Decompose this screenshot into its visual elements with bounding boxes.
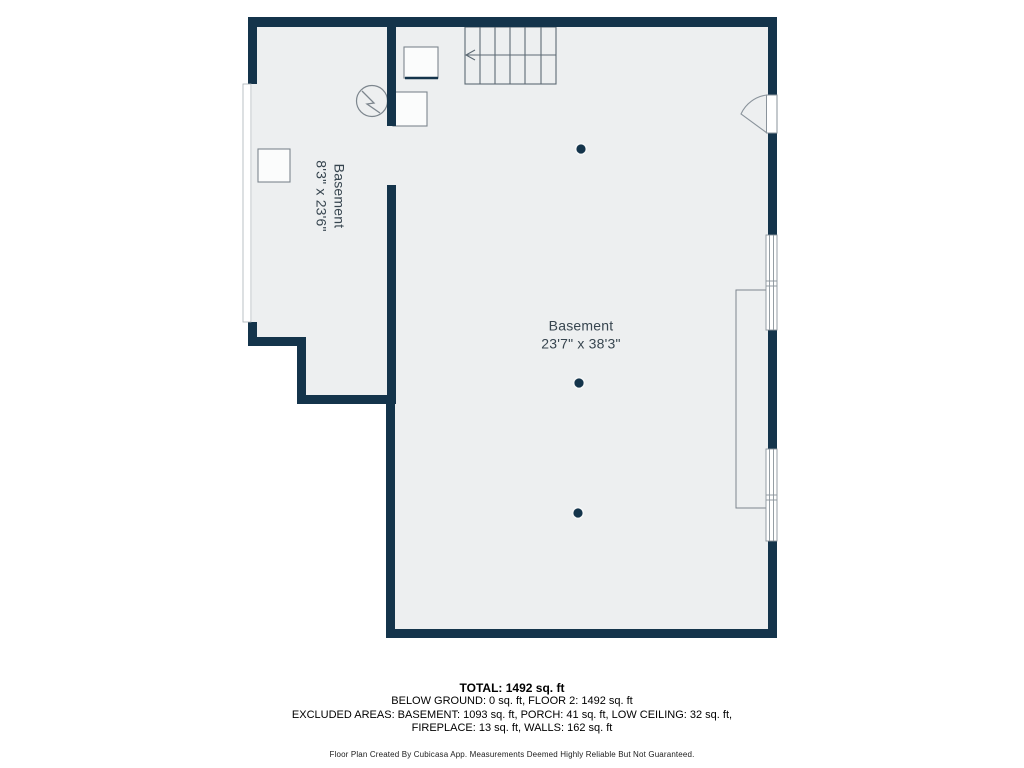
room-dimensions: 23'7" x 38'3" — [541, 335, 620, 353]
wall-right-2 — [768, 133, 777, 235]
floor-area — [252, 22, 772, 634]
wall-right-1 — [768, 17, 777, 95]
excluded-areas-text-2: FIREPLACE: 13 sq. ft, WALLS: 162 sq. ft — [0, 722, 1024, 736]
wall-top — [248, 17, 777, 27]
area-summary: TOTAL: 1492 sq. ft BELOW GROUND: 0 sq. f… — [0, 681, 1024, 759]
room-name: Basement — [541, 317, 620, 335]
room-name: Basement — [330, 160, 348, 231]
wall-notch-side — [297, 337, 306, 404]
disclaimer-text: Floor Plan Created By Cubicasa App. Meas… — [0, 750, 1024, 759]
window-icon-right-lower — [766, 449, 777, 541]
floor-plan-page: Basement 23'7" x 38'3" Basement 8'3" x 2… — [0, 0, 1024, 768]
wall-interior-lower — [387, 185, 396, 404]
wall-interior-upper — [387, 17, 396, 126]
storage-box-icon — [258, 149, 290, 182]
wall-notch-bottom — [297, 395, 395, 404]
stairs-icon — [465, 27, 556, 84]
appliance-icon — [404, 47, 438, 78]
column-dot — [573, 508, 584, 519]
wall-right-3 — [768, 330, 777, 449]
wall-main-left — [386, 395, 395, 638]
room-label-small: Basement 8'3" x 23'6" — [312, 160, 349, 231]
wall-right-4 — [768, 541, 777, 638]
wall-bottom — [386, 629, 777, 638]
room-dimensions: 8'3" x 23'6" — [312, 160, 330, 231]
water-heater-icon — [357, 86, 388, 117]
area-breakdown-text: BELOW GROUND: 0 sq. ft, FLOOR 2: 1492 sq… — [0, 695, 1024, 709]
wall-left-upper — [248, 17, 257, 84]
window-icon-left — [243, 84, 251, 322]
appliance-icon — [393, 92, 427, 126]
excluded-areas-text-1: EXCLUDED AREAS: BASEMENT: 1093 sq. ft, P… — [0, 709, 1024, 723]
column-dot — [574, 378, 585, 389]
room-label-main: Basement 23'7" x 38'3" — [541, 317, 620, 354]
window-icon-right-upper — [766, 235, 777, 330]
column-dot — [576, 144, 587, 155]
floor-plan — [0, 0, 1024, 768]
total-area-text: TOTAL: 1492 sq. ft — [0, 681, 1024, 695]
